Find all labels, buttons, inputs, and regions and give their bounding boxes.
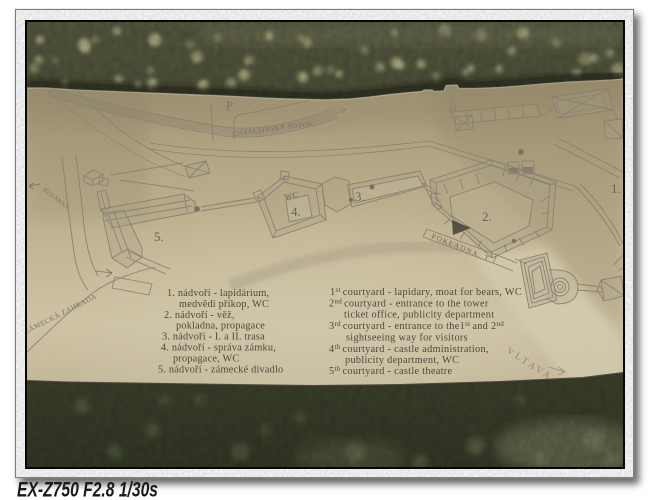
svg-text:EX-Z750 F2.8 1/30s: EX-Z750 F2.8 1/30s — [17, 478, 158, 500]
